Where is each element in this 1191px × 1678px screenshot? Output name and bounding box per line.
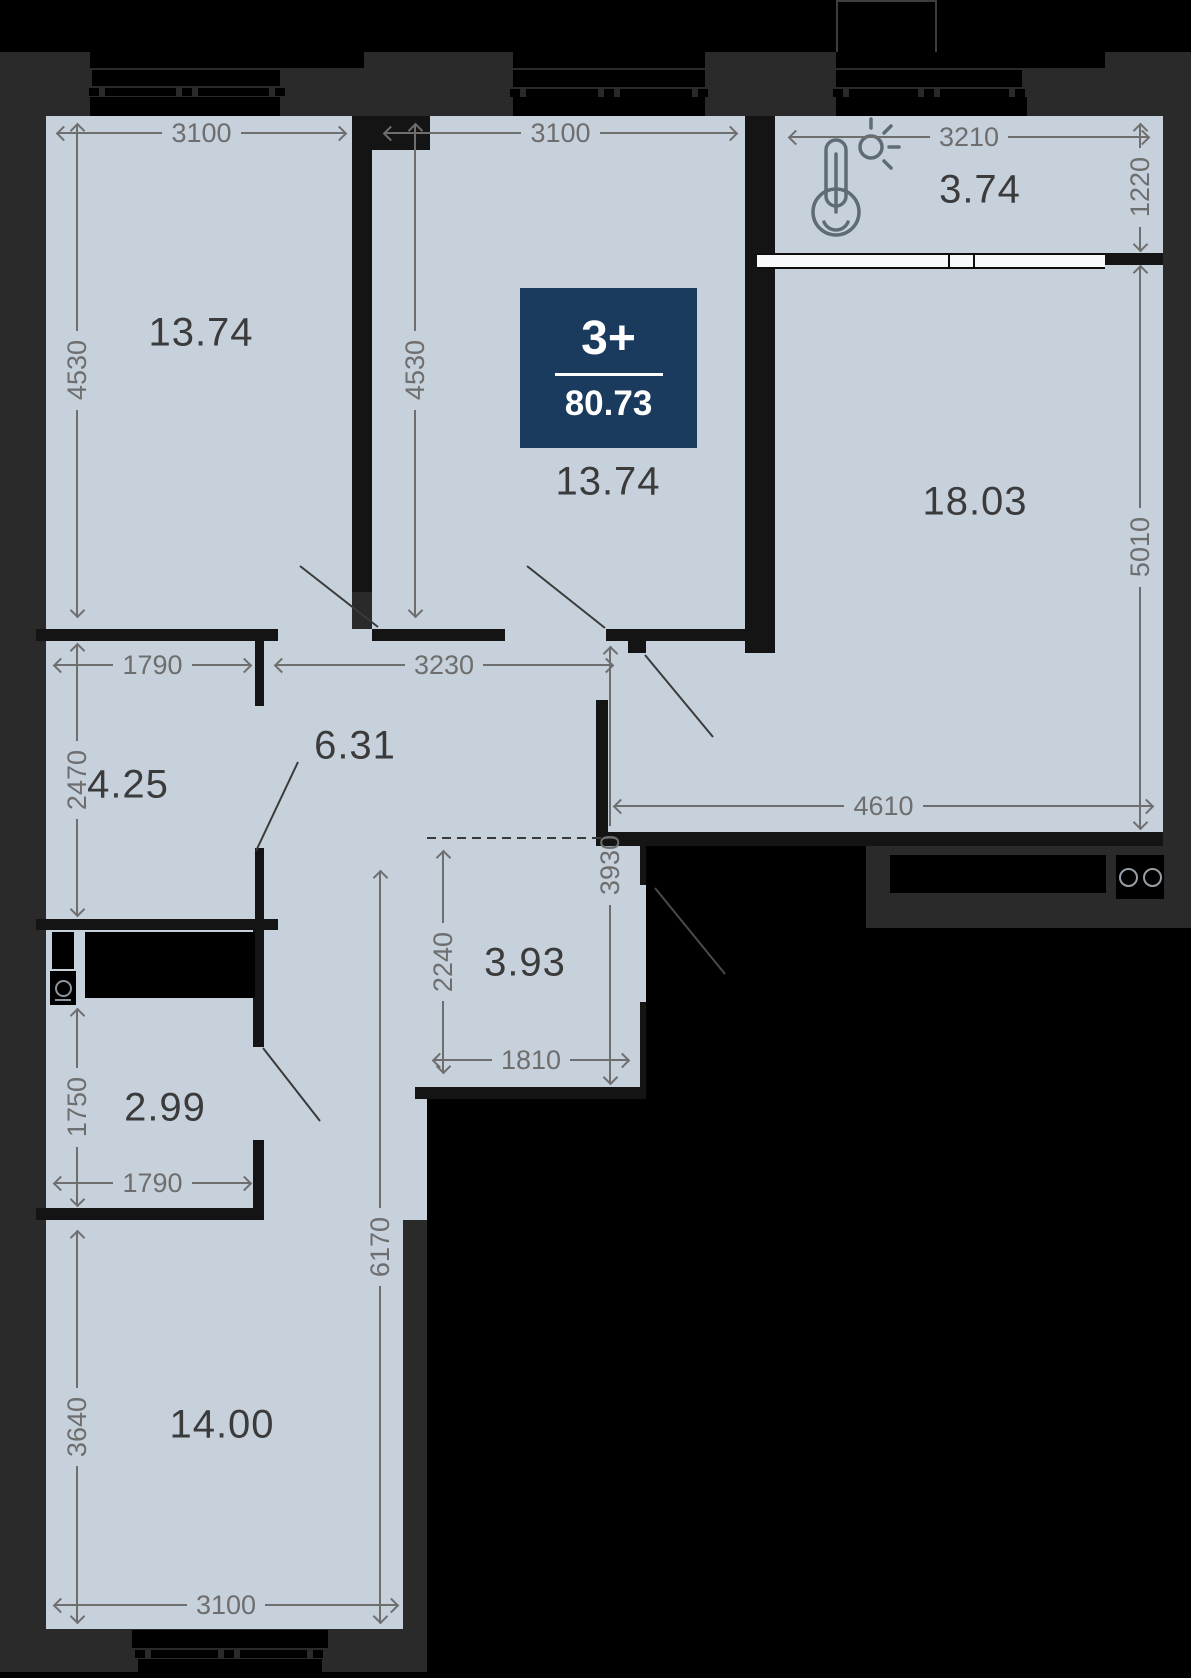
facade-band-top [0, 0, 1191, 52]
door-opening [255, 706, 264, 848]
wall [255, 848, 264, 930]
dimension-label: 1810 [492, 1047, 570, 1074]
room-fill-hall-column [264, 930, 427, 1220]
dimension: 2240 [429, 852, 457, 1072]
wall [1105, 253, 1163, 265]
window-block [836, 97, 1027, 116]
washing-machine-icon [50, 971, 76, 1005]
door-opening [253, 1047, 264, 1140]
room-area-living-kitchen: 18.03 [922, 480, 1027, 525]
wall [372, 629, 505, 641]
dimension: 4610 [615, 792, 1152, 820]
window-block [90, 97, 280, 116]
window-block [513, 97, 705, 116]
dimension-label: 3640 [64, 1388, 91, 1466]
dimension-label: 4530 [402, 331, 429, 409]
room-area-bathroom: 2.99 [124, 1086, 206, 1131]
room-area-bedroom-bottom: 14.00 [169, 1403, 274, 1448]
stove-icon [1116, 855, 1164, 899]
wall [606, 629, 745, 641]
room-area-corridor: 4.25 [87, 763, 169, 808]
dimension-label: 3100 [162, 120, 240, 147]
dimension-label: 6170 [367, 1208, 394, 1286]
dimension-label: 3100 [187, 1592, 265, 1619]
badge-rooms-label: 3+ [581, 315, 636, 363]
window-glazing [135, 1650, 323, 1658]
window-block [513, 52, 705, 68]
dimension: 3640 [63, 1232, 91, 1622]
room-fill-living-kitchen [775, 265, 1163, 832]
wall [415, 1087, 658, 1099]
dimension: 1220 [1126, 125, 1154, 250]
exterior-mass [0, 1672, 1191, 1678]
dimension-label: 3100 [521, 120, 599, 147]
window-glazing [833, 89, 1025, 97]
balcony-window [757, 253, 1105, 269]
wall [352, 116, 372, 592]
wall [596, 832, 1163, 846]
dimension-label: 1220 [1127, 148, 1154, 226]
dimension: 2470 [63, 645, 91, 915]
wall [628, 641, 646, 653]
wall [36, 629, 278, 641]
window-block [138, 1659, 322, 1673]
window-glazing [510, 89, 708, 97]
dimension-label: 1790 [113, 1170, 191, 1197]
dimension: 3930 [596, 648, 624, 1083]
room-area-hallway: 6.31 [314, 724, 396, 769]
dimension-label: 1750 [64, 1068, 91, 1146]
apartment-badge: 3+ 80.73 [520, 288, 697, 448]
dimension-label: 4530 [64, 331, 91, 409]
dimension: 3100 [55, 1591, 397, 1619]
kitchen-counter [890, 855, 1106, 893]
bathroom-fixture [85, 932, 255, 998]
dimension: 3210 [790, 123, 1148, 151]
dimension-label: 3930 [597, 826, 624, 904]
dimension: 3100 [58, 119, 345, 147]
dimension-label: 2470 [64, 741, 91, 819]
wall [36, 919, 278, 930]
room-area-bedroom-top-left: 13.74 [148, 311, 253, 356]
dimension-label: 3230 [405, 652, 483, 679]
room-area-balcony: 3.74 [939, 168, 1021, 213]
dimension: 1790 [55, 1169, 250, 1197]
door-opening [505, 629, 606, 641]
window-glazing [89, 88, 285, 96]
room-area-wardrobe: 3.93 [484, 941, 566, 986]
dimension: 4530 [401, 125, 429, 616]
dimension: 1810 [434, 1046, 628, 1074]
dimension-label: 2240 [430, 923, 457, 1001]
window-block [90, 52, 364, 68]
floor-plan: 3+ 80.73 13.74 13.74 3.74 18.03 4.25 6.3… [0, 0, 1191, 1678]
badge-divider [555, 373, 663, 376]
exterior-mass [427, 1099, 646, 1678]
wall [745, 116, 775, 653]
dimension: 4530 [63, 125, 91, 616]
dimension: 6170 [366, 872, 394, 1622]
dimension: 5010 [1126, 267, 1154, 828]
exterior-mass [646, 846, 1191, 1678]
window-block [836, 70, 1022, 87]
dimension-label: 3210 [930, 124, 1008, 151]
window-block [836, 52, 1105, 68]
window-block [92, 70, 280, 86]
dimension-label: 5010 [1127, 508, 1154, 586]
wall [255, 641, 264, 706]
dimension: 3100 [385, 119, 736, 147]
dimension-label: 4610 [844, 793, 922, 820]
dimension: 3230 [276, 651, 612, 679]
bathroom-fixture [52, 932, 74, 969]
wall [36, 1208, 264, 1220]
room-area-bedroom-top-center: 13.74 [555, 460, 660, 505]
window-block [513, 70, 705, 87]
dimension-label: 1790 [113, 652, 191, 679]
window-block [132, 1630, 328, 1648]
badge-total-area: 80.73 [565, 386, 653, 421]
door-opening [278, 629, 372, 641]
